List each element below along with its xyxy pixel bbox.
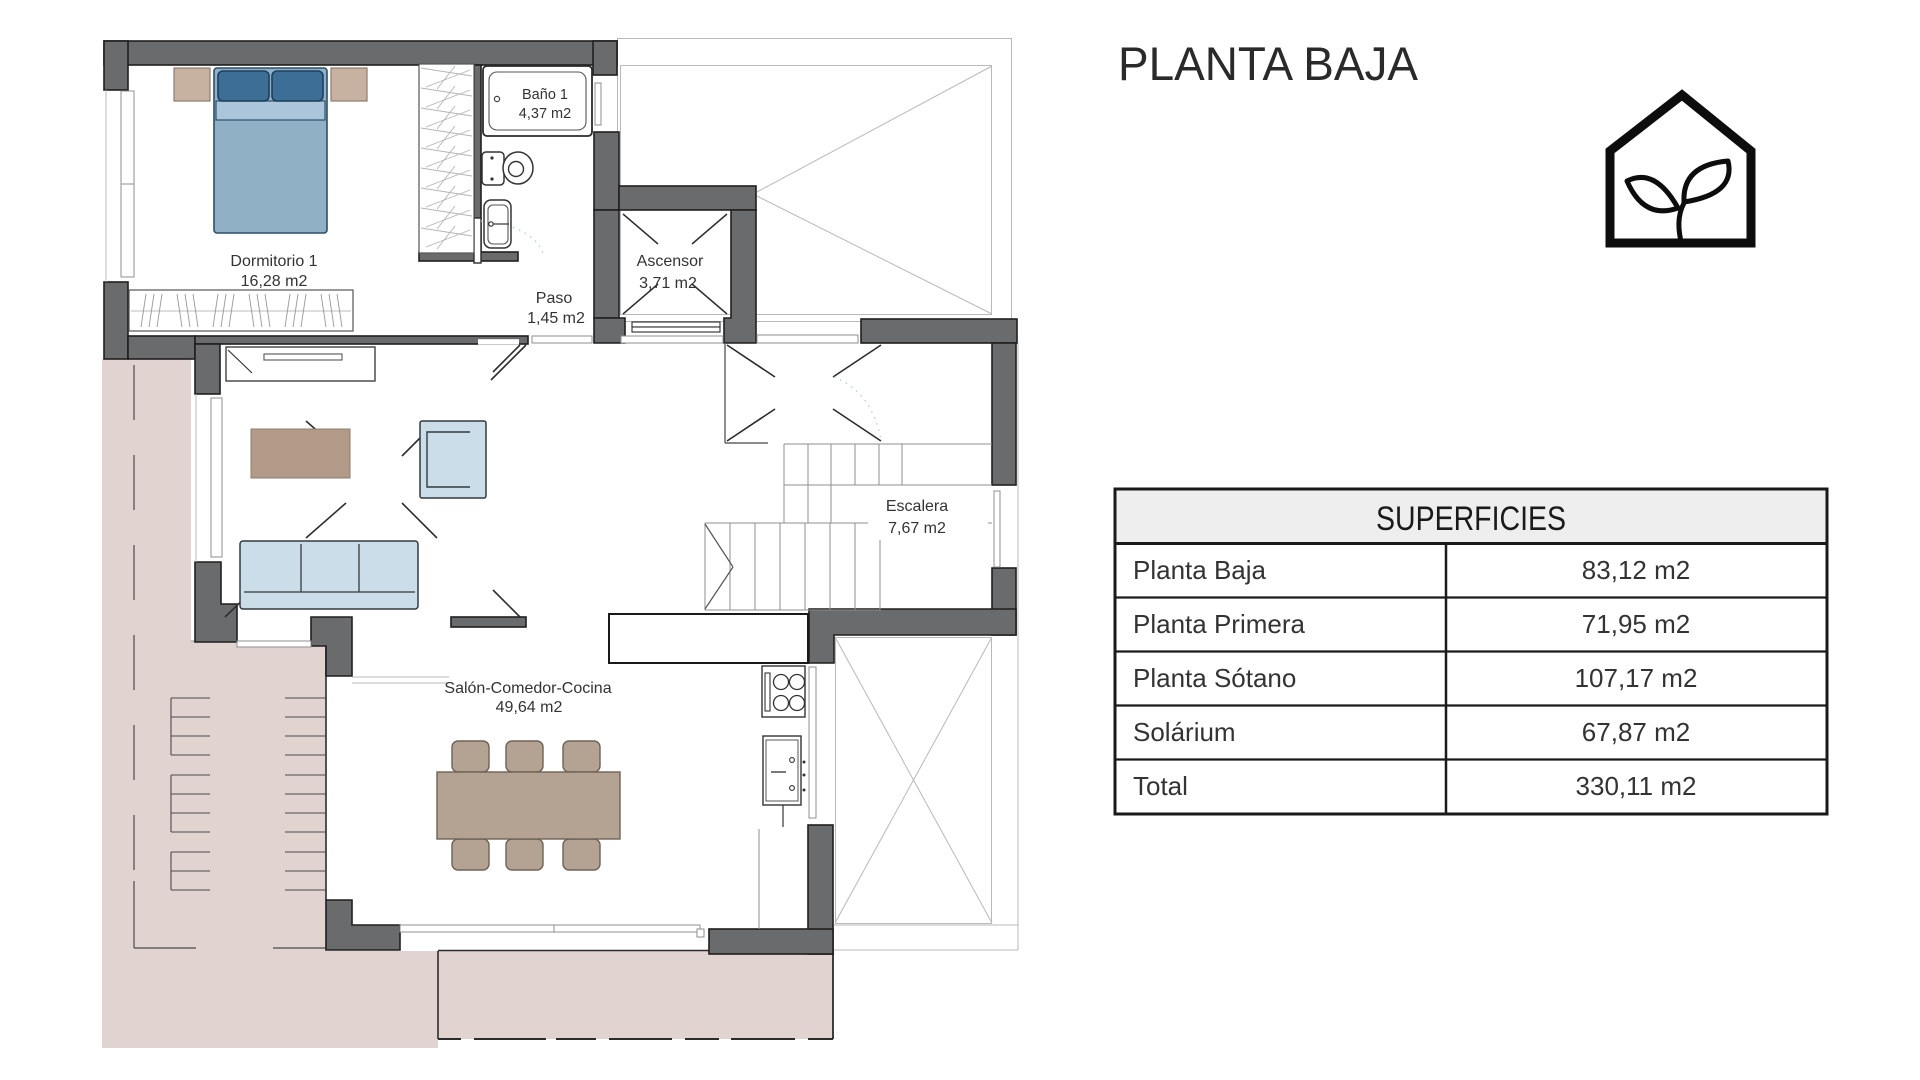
svg-text:Escalera: Escalera	[886, 498, 948, 515]
svg-text:83,12 m2: 83,12 m2	[1582, 555, 1690, 585]
svg-text:Planta Sótano: Planta Sótano	[1133, 663, 1296, 693]
svg-text:4,37 m2: 4,37 m2	[519, 106, 571, 122]
svg-text:PLANTA BAJA: PLANTA BAJA	[1118, 37, 1419, 90]
svg-text:Planta Baja: Planta Baja	[1133, 555, 1267, 585]
svg-text:1,45 m2: 1,45 m2	[527, 310, 585, 327]
svg-text:3,71 m2: 3,71 m2	[639, 275, 697, 292]
svg-text:71,95 m2: 71,95 m2	[1582, 609, 1690, 639]
svg-text:49,64 m2: 49,64 m2	[496, 699, 563, 716]
svg-text:7,67 m2: 7,67 m2	[888, 520, 946, 537]
svg-text:16,28 m2: 16,28 m2	[241, 273, 308, 290]
svg-text:Dormitorio 1: Dormitorio 1	[230, 253, 317, 270]
svg-text:SUPERFICIES: SUPERFICIES	[1376, 500, 1566, 538]
svg-text:Total: Total	[1133, 771, 1188, 801]
svg-text:Planta Primera: Planta Primera	[1133, 609, 1305, 639]
svg-text:67,87 m2: 67,87 m2	[1582, 717, 1690, 747]
svg-text:Baño 1: Baño 1	[522, 87, 568, 103]
svg-text:Paso: Paso	[536, 290, 573, 307]
svg-text:107,17 m2: 107,17 m2	[1575, 663, 1698, 693]
svg-text:Salón-Comedor-Cocina: Salón-Comedor-Cocina	[444, 680, 611, 697]
svg-text:Solárium: Solárium	[1133, 717, 1236, 747]
svg-text:330,11 m2: 330,11 m2	[1576, 771, 1697, 801]
svg-text:Ascensor: Ascensor	[637, 253, 704, 270]
